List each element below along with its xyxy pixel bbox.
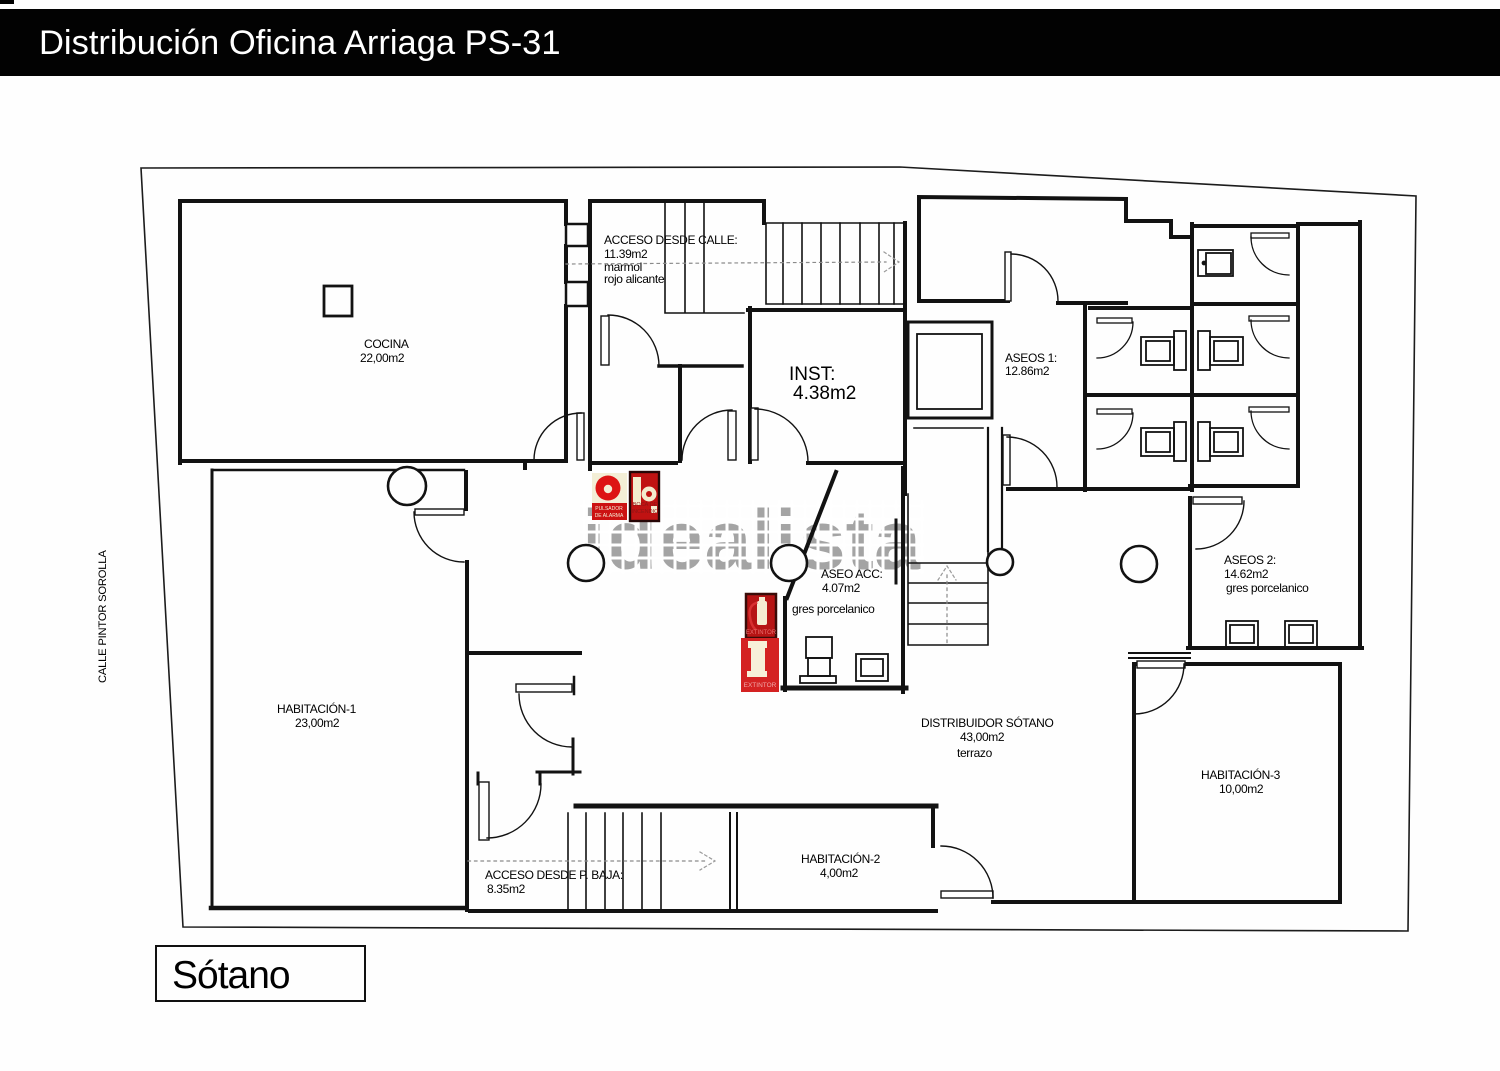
- svg-text:ACCESO DESDE P. BAJA:: ACCESO DESDE P. BAJA:: [485, 868, 623, 882]
- svg-text:8.35m2: 8.35m2: [487, 882, 526, 896]
- svg-text:Sótano: Sótano: [172, 954, 290, 997]
- svg-text:4.38m2: 4.38m2: [793, 383, 856, 404]
- svg-text:BOCA DE: BOCA DE: [633, 502, 658, 508]
- svg-text:43,00m2: 43,00m2: [960, 730, 1005, 744]
- svg-text:12.86m2: 12.86m2: [1005, 364, 1050, 378]
- svg-text:11.39m2: 11.39m2: [604, 247, 648, 261]
- svg-text:ASEO ACC:: ASEO ACC:: [821, 567, 883, 581]
- svg-text:22,00m2: 22,00m2: [360, 351, 405, 365]
- svg-text:HABITACIÓN-2: HABITACIÓN-2: [801, 851, 881, 866]
- svg-text:INCENDIO: INCENDIO: [632, 509, 660, 515]
- svg-text:4.07m2: 4.07m2: [822, 581, 861, 595]
- svg-text:10,00m2: 10,00m2: [1219, 782, 1264, 796]
- svg-text:terrazo: terrazo: [957, 746, 993, 760]
- svg-text:DISTRIBUIDOR SÓTANO: DISTRIBUIDOR SÓTANO: [921, 715, 1053, 730]
- svg-text:Distribución Oficina Arriaga P: Distribución Oficina Arriaga PS-31: [39, 24, 561, 62]
- svg-text:INST:: INST:: [789, 364, 835, 385]
- svg-text:ASEOS 2:: ASEOS 2:: [1224, 553, 1276, 567]
- svg-text:gres porcelanico: gres porcelanico: [792, 602, 875, 616]
- svg-text:ASEOS 1:: ASEOS 1:: [1005, 351, 1057, 365]
- svg-text:PULSADOR: PULSADOR: [595, 506, 623, 512]
- svg-text:CALLE PINTOR SOROLLA: CALLE PINTOR SOROLLA: [97, 550, 109, 683]
- svg-text:ACCESO DESDE CALLE:: ACCESO DESDE CALLE:: [604, 233, 737, 247]
- svg-text:gres porcelanico: gres porcelanico: [1226, 581, 1309, 595]
- svg-text:rojo alicante: rojo alicante: [604, 272, 665, 286]
- svg-text:HABITACIÓN-3: HABITACIÓN-3: [1201, 767, 1281, 782]
- svg-text:COCINA: COCINA: [364, 337, 409, 351]
- svg-text:EXTINTOR: EXTINTOR: [744, 682, 777, 689]
- svg-text:23,00m2: 23,00m2: [295, 716, 340, 730]
- svg-text:4,00m2: 4,00m2: [820, 866, 859, 880]
- svg-text:14.62m2: 14.62m2: [1224, 567, 1269, 581]
- svg-text:EXTINTOR: EXTINTOR: [746, 630, 777, 636]
- svg-text:DE ALARMA: DE ALARMA: [595, 513, 624, 519]
- svg-text:HABITACIÓN-1: HABITACIÓN-1: [277, 701, 357, 716]
